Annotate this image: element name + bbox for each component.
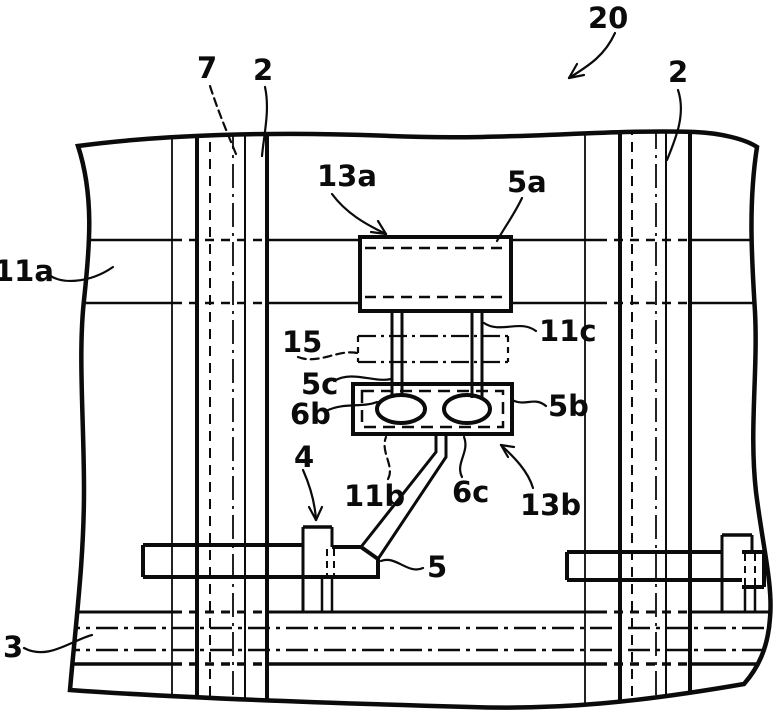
contact-hole-6c [444,395,490,423]
leader-line-5b-11 [512,400,546,406]
ref-label-6c-14: 6c [452,475,489,509]
leader-line-5c-9 [334,376,391,381]
ref-label-13b-15: 13b [520,488,581,522]
tft-branch-right-neck [745,587,755,612]
leader-line-3-17 [24,635,92,652]
contact-pad-13b [353,384,512,434]
data-line-left [172,125,267,712]
leader-line-5a-5 [497,198,522,241]
leader-line-11b-13 [385,437,390,479]
leader-line-5-16 [381,560,423,570]
ref-label-7-1: 7 [197,51,217,85]
storage-region-15-hidden-lines [358,336,508,362]
gate-line-3 [58,612,778,664]
ref-label-4-12: 4 [294,440,314,474]
data-line-right [585,125,690,712]
ref-label-11b-13: 11b [344,479,405,513]
leader-line-11a-6 [46,267,113,281]
ref-label-2-3: 2 [668,55,688,89]
ref-label-20-0: 20 [588,1,628,35]
patent-figure: 2072213a5a11a1511c5c6b5b411b6c13b53 [0,0,781,713]
tft-region-left [143,527,378,612]
storage-region-15-hidden-ends [358,336,508,362]
leader-line-13a-4 [332,194,386,234]
storage-region-15 [358,336,508,362]
ref-label-11a-6: 11a [0,254,54,288]
ref-label-3-17: 3 [3,630,23,664]
leader-line-4-12 [303,470,316,520]
leader-line-6c-14 [460,437,465,477]
substrate-interior [58,125,778,712]
arrowhead-4 [316,507,322,520]
ref-label-6b-10: 6b [290,397,331,431]
ref-label-5b-11: 5b [548,389,589,423]
leader-line-20-0 [569,33,615,78]
ref-label-15-7: 15 [282,325,322,359]
ref-label-5c-9: 5c [301,367,338,401]
contact-hole-6b [377,395,425,423]
ref-label-11c-8: 11c [539,314,597,348]
contact-pad-13a-outline [360,237,511,311]
gate-arm-right [567,552,742,580]
ref-label-5-16: 5 [427,550,447,584]
tft-branch-4-neck [322,577,332,612]
figure-canvas: 2072213a5a11a1511c5c6b5b411b6c13b53 [0,0,781,713]
ref-label-13a-4: 13a [317,159,377,193]
ref-label-2-2: 2 [253,53,273,87]
contact-pad-13a [360,237,511,311]
drain-pad-5-fill [332,547,378,577]
leader-line-2-3 [667,90,681,160]
ref-label-5a-5: 5a [507,165,547,199]
leader-line-11c-8 [484,323,536,331]
